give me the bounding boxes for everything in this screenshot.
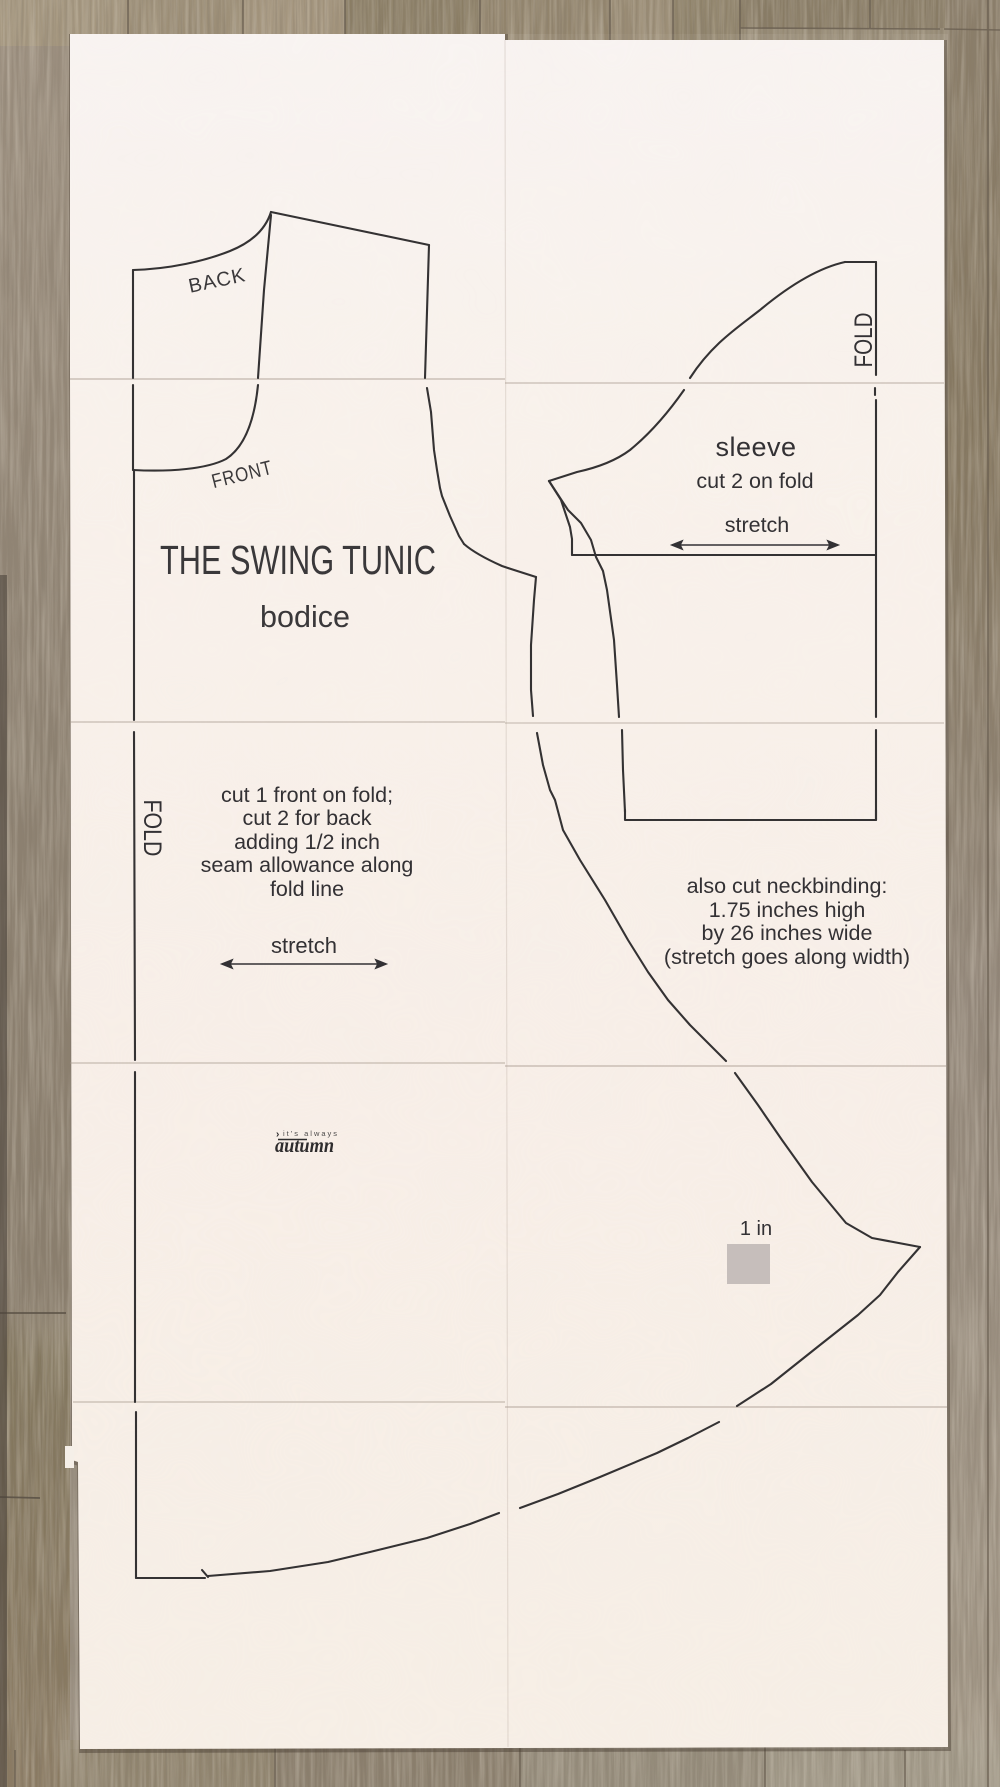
svg-text:cut 2 for back: cut 2 for back — [242, 806, 371, 830]
svg-text:also cut neckbinding:: also cut neckbinding: — [687, 874, 888, 898]
svg-text:1.75 inches high: 1.75 inches high — [709, 898, 866, 922]
svg-text:FOLD: FOLD — [850, 313, 878, 368]
svg-text:by 26 inches wide: by 26 inches wide — [702, 921, 873, 945]
svg-text:autumn: autumn — [275, 1135, 334, 1157]
svg-text:stretch: stretch — [725, 513, 790, 537]
svg-text:adding 1/2 inch: adding 1/2 inch — [234, 830, 380, 854]
svg-text:fold line: fold line — [270, 877, 344, 901]
svg-text:bodice: bodice — [260, 599, 350, 634]
svg-text:cut 2 on fold: cut 2 on fold — [696, 469, 813, 493]
svg-text:seam allowance along: seam allowance along — [201, 853, 414, 877]
svg-text:THE SWING TUNIC: THE SWING TUNIC — [160, 537, 436, 583]
svg-text:(stretch goes along width): (stretch goes along width) — [664, 945, 910, 969]
svg-text:cut 1 front on fold;: cut 1 front on fold; — [221, 783, 393, 807]
svg-text:sleeve: sleeve — [715, 432, 796, 462]
svg-text:FOLD: FOLD — [138, 800, 166, 857]
svg-text:stretch: stretch — [271, 933, 337, 958]
svg-text:1 in: 1 in — [740, 1218, 772, 1240]
